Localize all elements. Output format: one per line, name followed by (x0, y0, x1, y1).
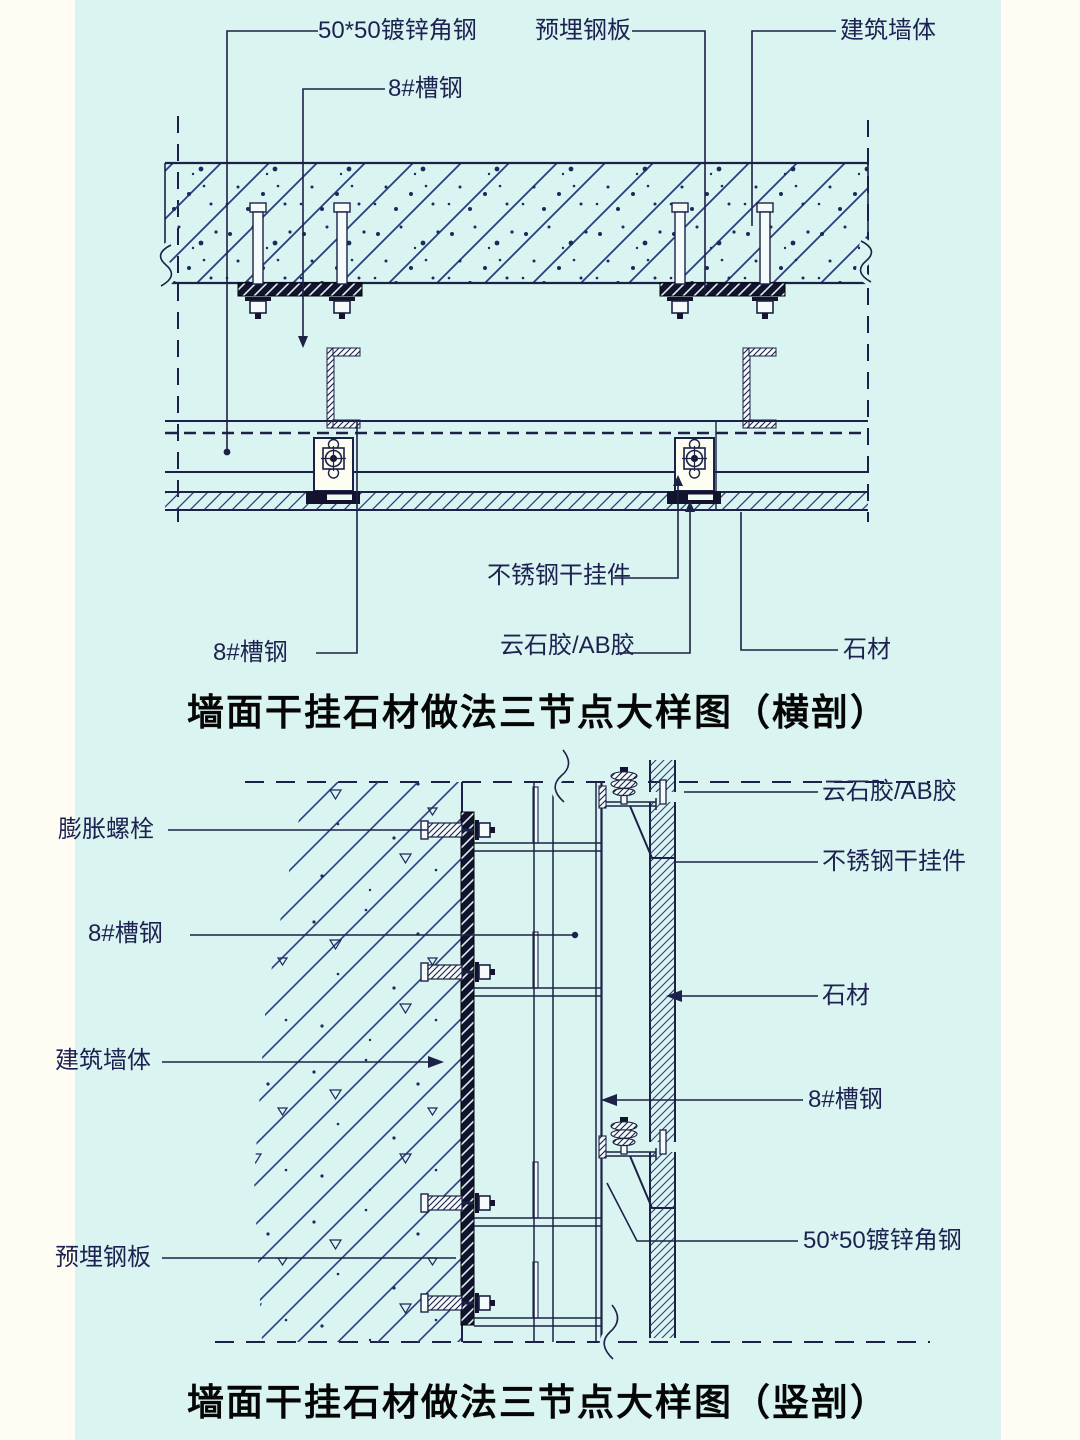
label-hanger-top: 不锈钢干挂件 (487, 563, 631, 589)
label-angle-steel-top: 50*50镀锌角钢 (318, 18, 477, 44)
label-channel-top: 8#槽钢 (388, 76, 463, 102)
channel-steel-sections (327, 348, 776, 428)
embedded-plate-vertical (461, 812, 474, 1325)
embedded-plate (238, 283, 785, 296)
label-embed-plate-top: 预埋钢板 (535, 18, 631, 44)
label-wall-top: 建筑墙体 (840, 18, 936, 44)
label-anchor-bolt: 膨胀螺栓 (58, 817, 154, 843)
label-stone-bottom: 石材 (822, 983, 870, 1009)
label-channel-right: 8#槽钢 (808, 1087, 883, 1113)
break-marks-bottom (555, 750, 617, 1359)
label-embed-plate-bottom: 预埋钢板 (55, 1245, 151, 1271)
label-angle-steel-bottom: 50*50镀锌角钢 (803, 1228, 962, 1254)
angle-connectors (474, 787, 601, 1326)
label-hanger-bottom: 不锈钢干挂件 (822, 849, 966, 875)
label-glue-bottom: 云石胶/AB胶 (822, 779, 957, 805)
bottom-diagram-title: 墙面干挂石材做法三节点大样图（竖剖） (75, 1372, 1001, 1426)
top-diagram-graphics (161, 31, 872, 653)
drawing-page: 50*50镀锌角钢 8#槽钢 预埋钢板 建筑墙体 8#槽钢 不锈钢干挂件 云石胶… (0, 0, 1080, 1440)
top-leader-lines (224, 31, 838, 653)
top-diagram-title: 墙面干挂石材做法三节点大样图（横剖） (75, 682, 1001, 736)
label-wall-bottom: 建筑墙体 (55, 1048, 151, 1074)
stone-panel-section (165, 421, 868, 510)
stone-panel-vertical (648, 760, 677, 1338)
label-channel-left: 8#槽钢 (88, 921, 163, 947)
label-channel-bottom: 8#槽钢 (213, 640, 288, 666)
bottom-diagram-graphics (162, 750, 930, 1359)
label-glue-top: 云石胶/AB胶 (500, 633, 635, 659)
label-stone-top: 石材 (843, 637, 891, 663)
channel-steel-vertical (534, 782, 602, 1342)
